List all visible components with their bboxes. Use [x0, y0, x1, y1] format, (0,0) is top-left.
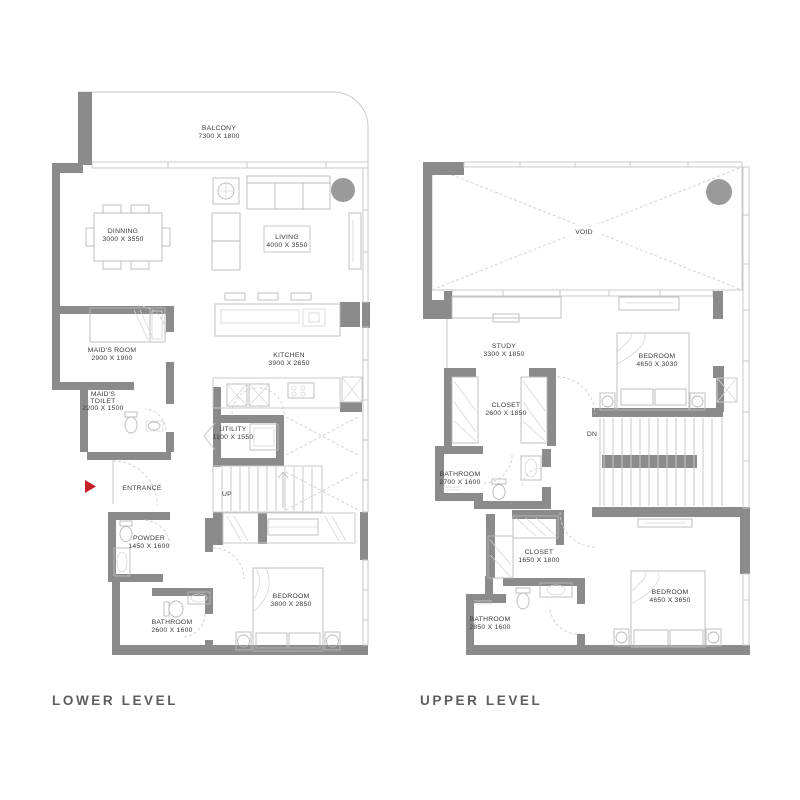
closet2-wardrobes: [488, 516, 558, 578]
powder-dims: 1450 X 1600: [128, 543, 169, 550]
lower-windows: [363, 168, 368, 645]
maids-toilet-fixtures: [125, 412, 163, 433]
upper-bathroom2-label: BATHROOM: [470, 616, 511, 623]
utility-dims: 1100 X 1550: [213, 434, 254, 441]
lower-bathroom-dims: 2600 X 1600: [151, 627, 192, 634]
kitchen-label: KITCHEN: [273, 352, 305, 359]
upper-level-title: UPPER LEVEL: [420, 693, 542, 708]
study-furniture: [452, 297, 561, 322]
upper-bathroom1-dims: 2700 X 1600: [439, 479, 480, 486]
lower-plan: BALCONY 7300 X 1800 DINNING 3000 X 3550 …: [52, 92, 370, 708]
upper-bedroom2-furniture: [614, 519, 721, 647]
floorplan-canvas: BALCONY 7300 X 1800 DINNING 3000 X 3550 …: [0, 0, 800, 800]
closet1-dims: 2600 X 1850: [485, 410, 526, 417]
dinning-dims: 3000 X 3550: [102, 236, 143, 243]
lower-level-title: LOWER LEVEL: [52, 693, 178, 708]
closet2-dims: 1650 X 1800: [518, 557, 559, 564]
upper-bedroom2-dims: 4650 X 3650: [649, 597, 690, 604]
upper-bedroom1-label: BEDROOM: [639, 353, 676, 360]
maids-toilet-dims: 2200 X 1500: [82, 405, 123, 412]
kitchen-dims: 3900 X 2650: [268, 360, 309, 367]
upper-bathroom1-label: BATHROOM: [440, 471, 481, 478]
upper-bedroom1-dims: 4650 X 3030: [636, 361, 677, 368]
upper-bedroom2-label: BEDROOM: [652, 589, 689, 596]
kitchen-fixtures: [213, 293, 362, 408]
balcony-label: BALCONY: [202, 125, 236, 132]
entrance-label: ENTRANCE: [122, 485, 162, 492]
study-label: STUDY: [492, 343, 517, 350]
living-dims: 4000 X 3550: [266, 242, 307, 249]
maids-room-label: MAID'S ROOM: [88, 347, 137, 354]
lower-bedroom-furniture: [223, 513, 355, 651]
maids-room-bed: [90, 308, 165, 342]
dn-label: DN: [587, 431, 597, 438]
closet1-label: CLOSET: [492, 402, 521, 409]
up-label: UP: [222, 491, 232, 498]
lower-bedroom-label: BEDROOM: [273, 593, 310, 600]
floorplan-svg: BALCONY 7300 X 1800 DINNING 3000 X 3550 …: [0, 0, 800, 800]
maids-room-dims: 2900 X 1900: [91, 355, 132, 362]
utility-label: UTILITY: [219, 426, 246, 433]
upper-bathroom2-dims: 2850 X 1600: [469, 624, 510, 631]
upper-plan: VOID STUDY 3300 X 1850 BEDROOM 4650 X 30…: [420, 162, 750, 708]
dinning-label: DINNING: [108, 228, 138, 235]
balcony-dims: 7300 X 1800: [198, 133, 239, 140]
closet2-label: CLOSET: [525, 549, 554, 556]
study-dims: 3300 X 1850: [483, 351, 524, 358]
maids-toilet-label-1: MAID'S: [91, 391, 116, 398]
lower-bathroom-label: BATHROOM: [152, 619, 193, 626]
lower-bedroom-dims: 3800 X 2850: [270, 601, 311, 608]
upper-column: [706, 179, 732, 205]
entrance-arrow-icon: [85, 480, 96, 493]
living-label: LIVING: [275, 234, 299, 241]
powder-label: POWDER: [133, 535, 165, 542]
maids-toilet-label-2: TOILET: [90, 398, 115, 405]
lower-column: [331, 178, 355, 202]
void-label: VOID: [575, 229, 593, 236]
